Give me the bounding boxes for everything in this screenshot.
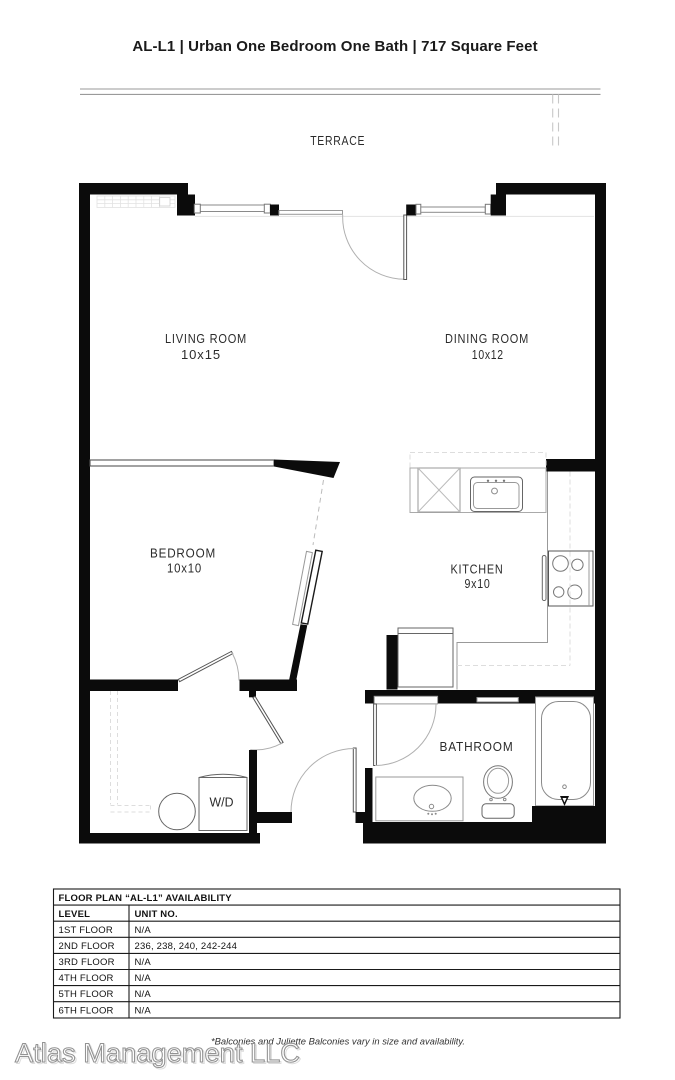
svg-text:N/A: N/A — [135, 1005, 152, 1016]
svg-text:236, 238, 240, 242-244: 236, 238, 240, 242-244 — [135, 941, 238, 952]
svg-text:N/A: N/A — [135, 957, 152, 968]
svg-text:UNIT NO.: UNIT NO. — [135, 909, 178, 920]
svg-text:FLOOR PLAN “AL-L1” AVAILABILIT: FLOOR PLAN “AL-L1” AVAILABILITY — [59, 893, 233, 904]
svg-text:10x12: 10x12 — [472, 347, 504, 362]
svg-text:LIVING ROOM: LIVING ROOM — [165, 331, 247, 346]
svg-text:4TH FLOOR: 4TH FLOOR — [59, 973, 114, 984]
svg-text:3RD FLOOR: 3RD FLOOR — [59, 957, 115, 968]
svg-text:1ST FLOOR: 1ST FLOOR — [59, 925, 113, 936]
svg-text:9x10: 9x10 — [465, 576, 491, 591]
svg-text:DINING ROOM: DINING ROOM — [445, 331, 529, 346]
svg-text:2ND FLOOR: 2ND FLOOR — [59, 941, 115, 952]
svg-text:N/A: N/A — [135, 989, 152, 1000]
svg-text:LEVEL: LEVEL — [59, 909, 91, 920]
svg-text:N/A: N/A — [135, 925, 152, 936]
svg-text:TERRACE: TERRACE — [310, 133, 365, 148]
svg-text:Atlas Management LLC: Atlas Management LLC — [15, 1038, 300, 1068]
svg-text:10x15: 10x15 — [181, 347, 221, 362]
svg-text:AL-L1 | Urban One Bedroom One: AL-L1 | Urban One Bedroom One Bath | 717… — [132, 38, 537, 55]
svg-text:BEDROOM: BEDROOM — [150, 546, 216, 561]
svg-text:N/A: N/A — [135, 973, 152, 984]
svg-text:W/D: W/D — [210, 796, 234, 810]
svg-text:6TH FLOOR: 6TH FLOOR — [59, 1005, 114, 1016]
svg-text:KITCHEN: KITCHEN — [451, 562, 504, 577]
svg-text:BATHROOM: BATHROOM — [440, 739, 514, 754]
svg-text:5TH FLOOR: 5TH FLOOR — [59, 989, 114, 1000]
svg-text:10x10: 10x10 — [167, 561, 202, 576]
